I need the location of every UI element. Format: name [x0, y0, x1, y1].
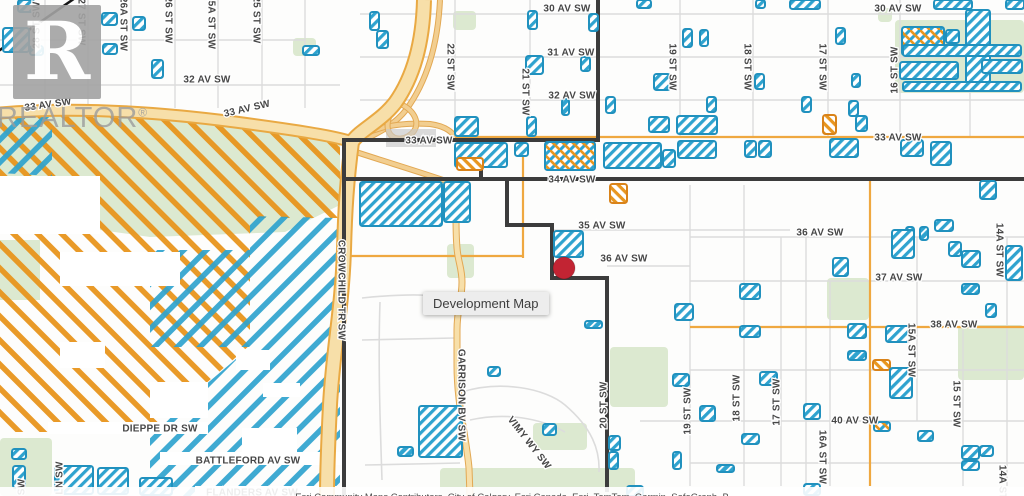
parcel — [581, 57, 590, 71]
parcel — [707, 97, 716, 112]
street-label: 30 AV SW — [543, 4, 591, 15]
street-label: 25A ST SW — [205, 0, 216, 49]
parcel — [589, 14, 598, 31]
park-area — [827, 278, 869, 320]
zone-gap — [150, 382, 208, 418]
street-label: 35 AV SW — [578, 221, 626, 232]
parcel — [873, 360, 890, 370]
street-label: 33 AV SW — [405, 136, 453, 147]
parcel — [892, 230, 914, 258]
parcel — [370, 12, 379, 30]
parcel — [527, 117, 536, 136]
parcel — [663, 150, 675, 167]
realtor-watermark: REALTOR® — [0, 102, 148, 135]
map-svg: 30 AV SW30 AV SW31 AV SW32 AV SW32 AV SW… — [0, 0, 1024, 496]
listing-marker[interactable] — [553, 257, 575, 279]
street-label: 26A ST SW — [117, 0, 128, 51]
parcel — [637, 0, 651, 8]
parcel — [759, 141, 771, 157]
parcel — [790, 0, 820, 9]
parcel — [103, 44, 117, 54]
parcel — [903, 45, 1021, 56]
street-label: 15 ST SW — [950, 380, 961, 428]
zone-gap — [60, 252, 180, 286]
street-label: 32 AV SW — [183, 75, 231, 86]
development-map-tooltip: Development Map — [423, 292, 549, 315]
parcel — [102, 13, 117, 25]
parcel — [918, 431, 933, 441]
parcel — [848, 351, 866, 360]
realtor-brand-text: REALTOR — [0, 102, 138, 134]
street-label: 19 ST SW — [683, 387, 694, 435]
parcel — [377, 31, 388, 48]
parcel — [1006, 0, 1024, 9]
parcel — [920, 227, 928, 240]
realtor-logo-letter: R — [24, 4, 90, 98]
zone-gap — [263, 383, 300, 397]
street-label: 26 ST SW — [162, 0, 173, 44]
map-canvas[interactable]: 30 AV SW30 AV SW31 AV SW32 AV SW32 AV SW… — [0, 0, 1024, 496]
map-attribution: Esri Community Maps Contributors, City o… — [0, 487, 1024, 496]
parcel — [830, 139, 858, 157]
parcel — [457, 158, 483, 170]
parcel — [935, 220, 953, 231]
street-label: DIEPPE DR SW — [122, 424, 198, 435]
parcel — [585, 321, 602, 328]
parcel — [606, 97, 615, 113]
street-label: 15A ST SW — [905, 323, 916, 378]
street-label: 17 ST SW — [816, 43, 827, 91]
parcel — [528, 11, 537, 29]
parcel — [836, 28, 845, 44]
street-label: 34 AV SW — [548, 175, 596, 186]
parcel — [1006, 246, 1022, 280]
parcel — [455, 117, 478, 136]
parcel — [931, 142, 951, 165]
parcel — [804, 404, 820, 419]
parcel — [986, 304, 996, 317]
parcel — [303, 46, 319, 55]
parcel — [152, 60, 163, 78]
street-label: 17 ST SW — [772, 378, 783, 426]
street-label: 20 ST SW — [599, 381, 610, 429]
parcel — [740, 326, 760, 337]
street-label: 19 ST SW — [666, 43, 677, 91]
street-label: 30 AV SW — [874, 4, 922, 15]
parcel — [554, 231, 583, 257]
parcel — [717, 465, 734, 472]
parcel — [609, 436, 620, 450]
street-label: 38 AV SW — [930, 320, 978, 331]
parcel — [673, 374, 689, 386]
parcel — [12, 449, 26, 459]
parcel — [755, 74, 764, 89]
parcel — [649, 117, 669, 132]
parcel — [515, 143, 528, 156]
parcel — [934, 0, 972, 9]
parcel — [545, 142, 595, 170]
street-label: CROWCHILD TR SW — [335, 240, 346, 341]
parcel — [962, 251, 980, 267]
street-label: 21 ST SW — [519, 68, 530, 116]
realtor-logo-icon: R — [13, 5, 101, 99]
street-label: 18 ST SW — [732, 374, 743, 422]
parcel — [398, 447, 413, 456]
parcel — [675, 304, 693, 320]
parcel — [673, 452, 681, 469]
street-label: 33 AV SW — [874, 133, 922, 144]
parcel — [946, 30, 959, 43]
parcel — [742, 434, 759, 444]
street-label: BATTLEFORD AV SW — [196, 456, 301, 467]
parcel — [980, 446, 993, 456]
parcel — [962, 461, 979, 470]
parcel — [823, 115, 836, 134]
parcel — [982, 60, 1022, 73]
parcel — [444, 182, 470, 222]
parcel — [543, 424, 556, 435]
street-label: 14A ST SW — [993, 223, 1004, 278]
parcel — [683, 29, 692, 47]
street-label: 31 AV SW — [547, 48, 595, 59]
street-label: 16 ST SW — [890, 46, 901, 94]
street-label: 40 AV SW — [831, 416, 879, 427]
parcel — [802, 97, 811, 112]
park-area — [533, 423, 587, 450]
zone-gap — [0, 176, 100, 234]
registered-mark: ® — [138, 105, 148, 119]
parcel — [609, 452, 618, 469]
parcel — [852, 74, 860, 87]
parcel — [133, 17, 145, 30]
parcel — [700, 30, 708, 46]
park-area — [958, 325, 1024, 380]
parcel — [360, 182, 442, 226]
street-label: 16A ST SW — [816, 430, 827, 485]
parcel — [980, 181, 996, 199]
parcel — [962, 446, 979, 459]
parcel — [962, 284, 979, 294]
parcel — [678, 141, 716, 158]
street-label: 25 ST SW — [250, 0, 261, 44]
parcel — [740, 284, 760, 299]
parcel — [949, 242, 961, 256]
parcel — [849, 101, 858, 116]
street-label: 32 AV SW — [548, 91, 596, 102]
zone-gap — [236, 350, 270, 370]
parcel — [833, 258, 848, 276]
parcel — [488, 367, 500, 376]
parcel — [900, 62, 958, 79]
street-label: GARRISON BV SW — [455, 349, 466, 442]
parcel — [848, 324, 866, 338]
marker-layer — [553, 257, 575, 279]
zone-gap — [242, 428, 297, 452]
parcel — [700, 406, 715, 421]
parcel — [856, 116, 867, 131]
street-label: 18 ST SW — [741, 43, 752, 91]
street-label: 36 AV SW — [796, 228, 844, 239]
parcel — [756, 0, 765, 8]
attribution-text: Esri Community Maps Contributors, City o… — [295, 492, 729, 496]
parcel — [745, 141, 756, 157]
street-label: 36 AV SW — [600, 254, 648, 265]
parcel — [604, 143, 661, 168]
park-area — [610, 347, 668, 407]
street-label: 22 ST SW — [444, 43, 455, 91]
street-label: 37 AV SW — [875, 273, 923, 284]
parcel — [610, 184, 627, 203]
zone-gap — [60, 342, 105, 368]
parcel — [677, 116, 717, 134]
parcel — [903, 82, 1021, 91]
